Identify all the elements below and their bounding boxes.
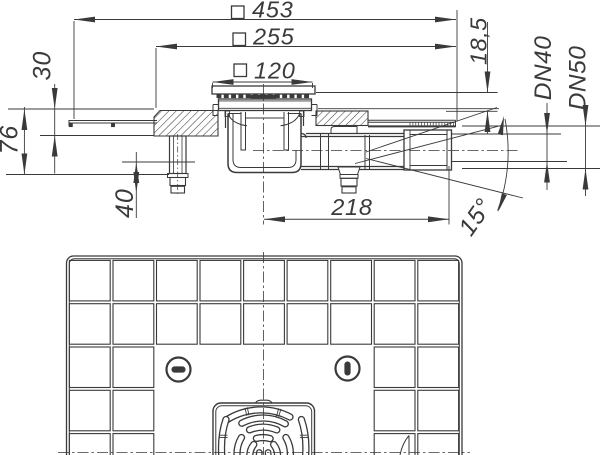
svg-text:15°: 15° [454,194,498,241]
svg-text:30: 30 [29,51,57,81]
svg-text:255: 255 [252,24,295,50]
svg-text:DN40: DN40 [530,36,557,101]
svg-text:DN50: DN50 [565,46,592,111]
svg-text:40: 40 [111,188,139,218]
svg-text:120: 120 [254,58,296,84]
svg-text:218: 218 [330,194,373,220]
svg-text:76: 76 [0,125,24,155]
svg-text:453: 453 [252,0,294,23]
